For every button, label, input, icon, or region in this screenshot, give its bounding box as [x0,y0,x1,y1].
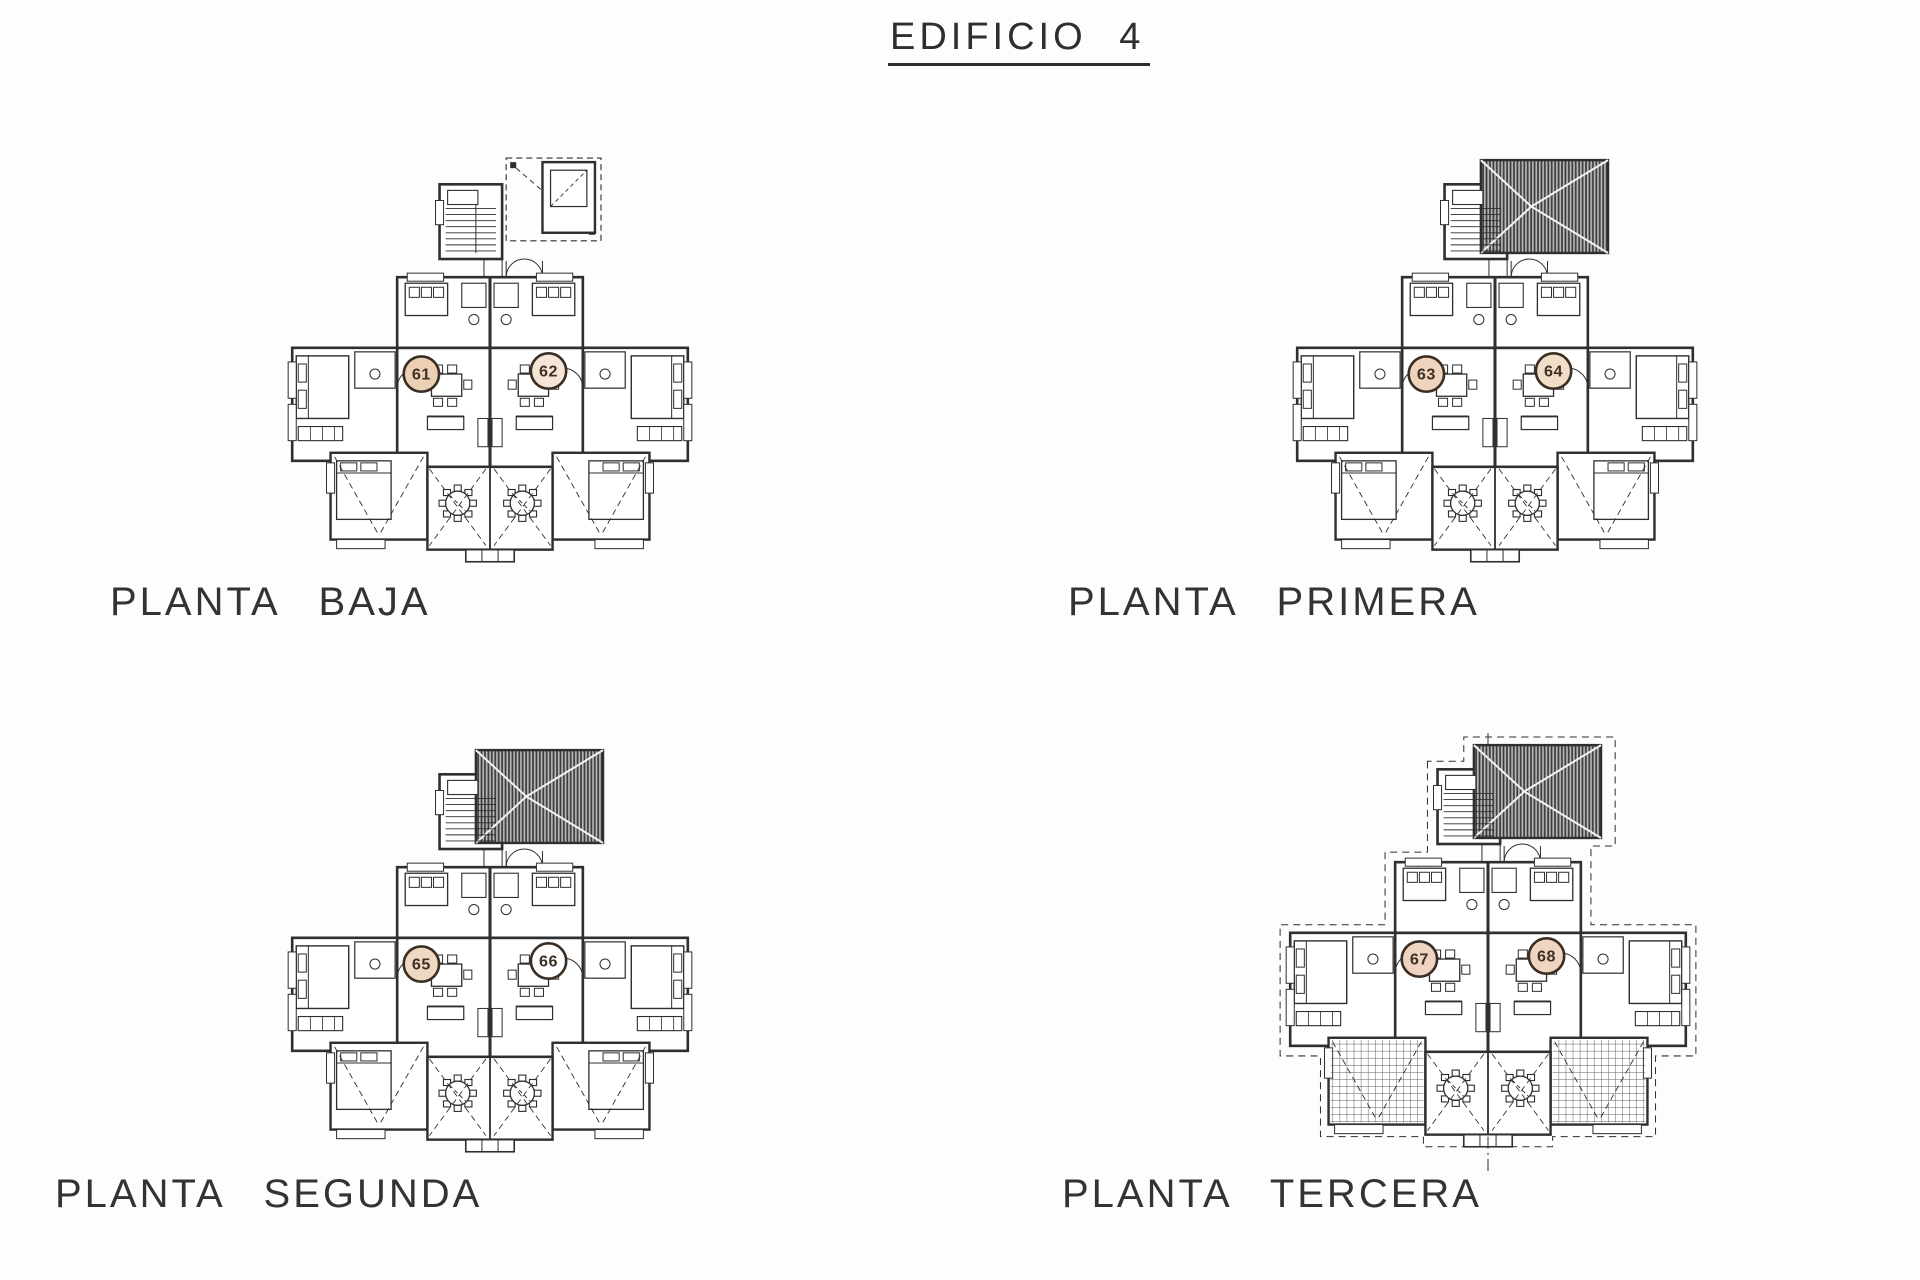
plan-drawing-baja [288,158,692,562]
unit-number: 68 [1537,948,1556,966]
unit-number: 66 [539,953,558,971]
unit-61-badge: 61 [404,356,439,391]
plan-drawing-segunda [288,750,692,1152]
unit-65-badge: 65 [404,946,439,981]
unit-number: 63 [1417,366,1436,384]
floor-label-planta-segunda: PLANTA SEGUNDA [55,1172,482,1217]
unit-number: 65 [412,956,431,974]
plan-drawing-primera [1293,160,1697,562]
floor-plan-planta-primera: 6364 [1283,148,1707,588]
unit-62-badge: 62 [531,353,566,388]
unit-number: 61 [412,366,431,384]
floor-label-planta-tercera: PLANTA TERCERA [1062,1172,1482,1217]
unit-number: 64 [1544,363,1563,381]
unit-64-badge: 64 [1536,353,1571,388]
floor-plan-planta-baja: 6162 [278,148,702,588]
floor-label-planta-baja: PLANTA BAJA [110,580,431,625]
plan-drawing-tercera [1280,733,1696,1171]
unit-number: 62 [539,363,558,381]
floor-plan-planta-segunda: 6566 [278,738,702,1178]
drawing-sheet: EDIFICIO 4 6162 6364 6566 6768 PLANTA BA… [0,0,1920,1280]
unit-68-badge: 68 [1529,938,1564,973]
unit-66-badge: 66 [531,943,566,978]
floor-label-planta-primera: PLANTA PRIMERA [1068,580,1480,625]
unit-63-badge: 63 [1409,356,1444,391]
floor-plan-planta-tercera: 6768 [1276,733,1700,1173]
unit-number: 67 [1410,951,1429,969]
sheet-title: EDIFICIO 4 [888,16,1150,66]
unit-67-badge: 67 [1402,941,1437,976]
